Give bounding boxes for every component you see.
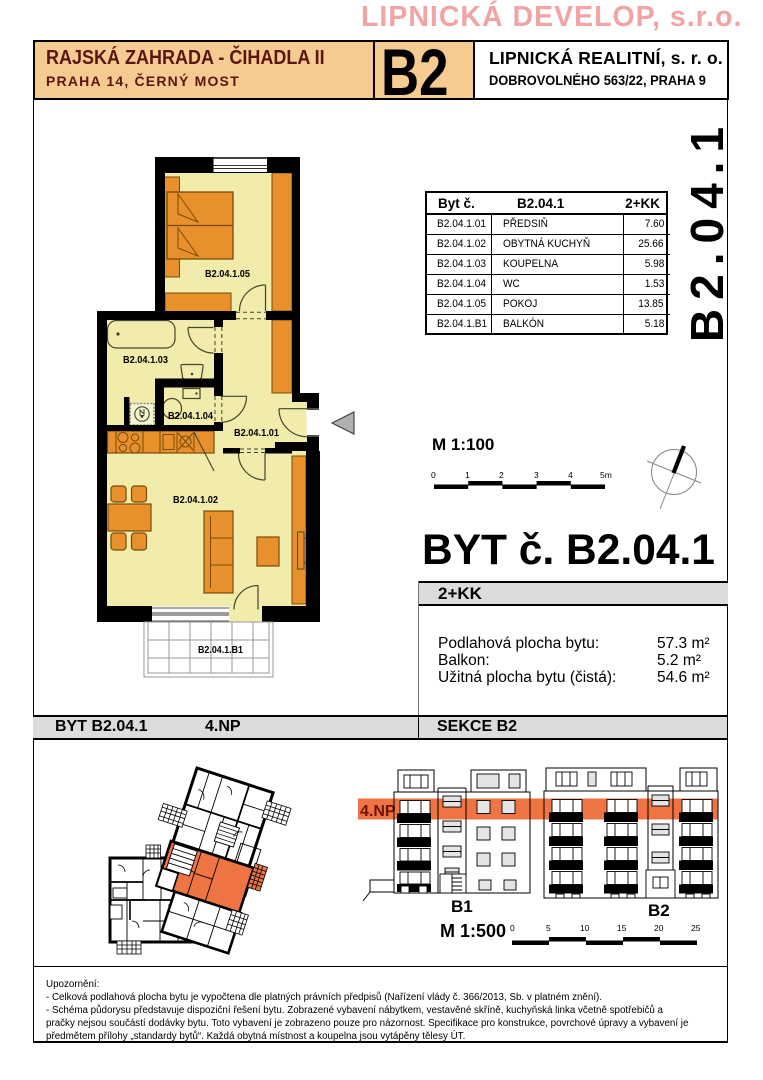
svg-text:B2: B2 — [648, 901, 670, 920]
svg-text:B2.04.1.02: B2.04.1.02 — [173, 494, 218, 506]
svg-text:B2.04.1.01: B2.04.1.01 — [234, 427, 279, 439]
svg-text:2: 2 — [499, 470, 504, 480]
svg-text:1: 1 — [465, 470, 470, 480]
svg-text:15: 15 — [617, 923, 627, 933]
svg-text:B1: B1 — [451, 897, 473, 916]
svg-text:5: 5 — [546, 923, 551, 933]
svg-text:B2.04.1: B2.04.1 — [681, 118, 733, 342]
svg-text:0: 0 — [431, 470, 436, 480]
svg-text:B2.04.1.05: B2.04.1.05 — [205, 268, 250, 280]
svg-text:0: 0 — [510, 923, 515, 933]
svg-text:4.NP: 4.NP — [360, 803, 396, 820]
svg-text:4: 4 — [568, 470, 573, 480]
svg-text:B2.04.1.03: B2.04.1.03 — [123, 354, 168, 366]
svg-text:25: 25 — [691, 923, 701, 933]
svg-text:B2.04.1.B1: B2.04.1.B1 — [198, 644, 243, 656]
svg-text:20: 20 — [654, 923, 664, 933]
svg-text:5m: 5m — [600, 470, 612, 480]
svg-text:3: 3 — [534, 470, 539, 480]
svg-text:B2.04.1.04: B2.04.1.04 — [168, 410, 213, 422]
svg-text:10: 10 — [580, 923, 590, 933]
